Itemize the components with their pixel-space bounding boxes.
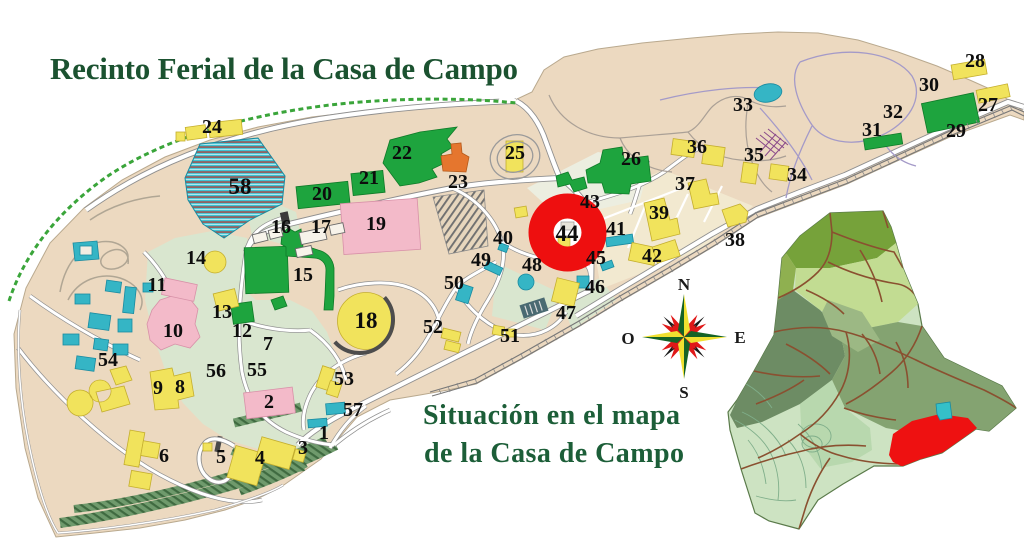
svg-text:31: 31 (862, 119, 882, 141)
svg-text:S: S (679, 383, 688, 402)
svg-text:42: 42 (642, 245, 662, 267)
svg-text:O: O (621, 329, 634, 348)
svg-text:41: 41 (606, 218, 626, 240)
svg-text:44: 44 (556, 221, 580, 246)
svg-text:20: 20 (312, 183, 332, 205)
svg-text:58: 58 (229, 174, 252, 199)
svg-text:39: 39 (649, 202, 669, 224)
svg-text:6: 6 (159, 445, 169, 467)
svg-text:53: 53 (334, 368, 354, 390)
svg-text:2: 2 (264, 391, 274, 413)
svg-text:8: 8 (175, 376, 185, 398)
svg-text:19: 19 (366, 213, 386, 235)
svg-text:33: 33 (733, 94, 753, 116)
svg-text:46: 46 (585, 276, 605, 298)
svg-text:4: 4 (255, 447, 265, 469)
svg-text:38: 38 (725, 229, 745, 251)
svg-text:25: 25 (505, 142, 525, 164)
svg-text:51: 51 (500, 325, 520, 347)
svg-text:49: 49 (471, 249, 491, 271)
svg-text:11: 11 (148, 274, 167, 296)
svg-text:16: 16 (271, 216, 291, 238)
svg-text:12: 12 (232, 320, 252, 342)
svg-text:56: 56 (206, 360, 226, 382)
svg-text:50: 50 (444, 272, 464, 294)
svg-text:15: 15 (293, 264, 313, 286)
svg-text:29: 29 (946, 120, 966, 142)
svg-text:23: 23 (448, 171, 468, 193)
svg-text:30: 30 (919, 74, 939, 96)
svg-text:Situación en el mapa: Situación en el mapa (423, 400, 680, 431)
svg-text:37: 37 (675, 173, 695, 195)
svg-text:40: 40 (493, 227, 513, 249)
svg-text:48: 48 (522, 254, 542, 276)
svg-text:9: 9 (153, 377, 163, 399)
svg-text:27: 27 (978, 94, 998, 116)
svg-text:17: 17 (311, 216, 331, 238)
svg-text:de la Casa de Campo: de la Casa de Campo (424, 438, 684, 469)
svg-text:13: 13 (212, 301, 232, 323)
svg-text:N: N (678, 275, 691, 294)
svg-text:47: 47 (556, 302, 576, 324)
svg-text:45: 45 (586, 247, 606, 269)
svg-text:22: 22 (392, 142, 412, 164)
svg-text:14: 14 (186, 247, 206, 269)
svg-text:10: 10 (163, 320, 183, 342)
svg-text:43: 43 (580, 191, 600, 213)
svg-text:57: 57 (343, 399, 363, 421)
svg-text:26: 26 (621, 148, 641, 170)
svg-text:E: E (734, 328, 745, 347)
svg-text:36: 36 (687, 136, 707, 158)
svg-text:54: 54 (98, 349, 118, 371)
svg-text:21: 21 (359, 167, 379, 189)
svg-text:34: 34 (787, 164, 807, 186)
svg-text:Recinto Ferial de la Casa de C: Recinto Ferial de la Casa de Campo (50, 51, 518, 86)
svg-text:3: 3 (298, 437, 308, 459)
svg-text:32: 32 (883, 101, 903, 123)
svg-text:55: 55 (247, 359, 267, 381)
svg-text:7: 7 (263, 333, 273, 355)
svg-text:5: 5 (216, 446, 226, 468)
svg-text:18: 18 (355, 308, 378, 333)
svg-text:28: 28 (965, 50, 985, 72)
svg-text:1: 1 (319, 422, 329, 444)
svg-text:52: 52 (423, 316, 443, 338)
svg-text:35: 35 (744, 144, 764, 166)
svg-text:24: 24 (202, 116, 222, 138)
